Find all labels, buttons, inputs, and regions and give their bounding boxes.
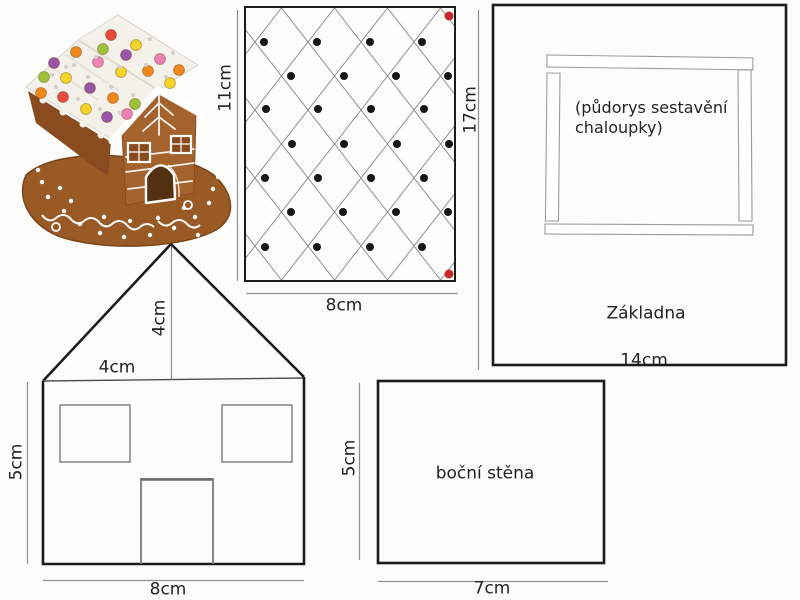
- icing-dot: [46, 195, 50, 199]
- dim-label-roof-left: 11cm: [218, 64, 235, 112]
- sugar-pearl: [98, 107, 102, 111]
- candy-button: [131, 40, 142, 51]
- corner-marker-dot: [445, 270, 454, 279]
- sugar-pearl: [72, 63, 76, 67]
- candy-button: [143, 66, 154, 77]
- lattice-dot: [262, 105, 270, 113]
- candy-button: [102, 112, 113, 123]
- icing-dot: [98, 231, 102, 235]
- floorplan-note-line2: chaloupky): [575, 118, 727, 138]
- lattice-dot: [366, 243, 374, 251]
- photo-door-arch: [146, 165, 175, 203]
- sugar-pearl: [64, 65, 68, 69]
- corner-marker-dot: [445, 12, 454, 21]
- pattern-sheet: 11cm 17cm 8cm (půdorys sestavění chaloup…: [0, 0, 800, 600]
- candy-button: [108, 93, 119, 104]
- candy-button: [122, 109, 133, 120]
- lattice-dot: [420, 174, 428, 182]
- candy-button: [61, 73, 72, 84]
- icing-dot: [172, 226, 176, 230]
- candy-button: [58, 92, 69, 103]
- candy-button: [155, 54, 166, 65]
- dim-label-roof-bottom: 8cm: [326, 298, 363, 315]
- lattice-dot: [287, 208, 295, 216]
- icing-dot: [196, 233, 200, 237]
- icing-dot: [207, 201, 211, 205]
- sugar-pearl: [171, 51, 175, 55]
- sugar-pearl: [94, 55, 98, 59]
- candy-button: [39, 72, 50, 83]
- icing-dot: [156, 216, 160, 220]
- icing-dot: [69, 199, 73, 203]
- icing-dot: [102, 215, 106, 219]
- sugar-pearl: [164, 75, 168, 79]
- gingerbread-house-photo: [8, 5, 238, 255]
- lattice-dot: [314, 105, 322, 113]
- dim-label-wall-side: 5cm: [9, 444, 26, 481]
- lattice-dot: [418, 243, 426, 251]
- lattice-dot: [339, 208, 347, 216]
- base-piece-label: Základna: [606, 306, 685, 323]
- lattice-dot: [392, 208, 400, 216]
- icing-dot: [62, 209, 66, 213]
- lattice-dot: [261, 243, 269, 251]
- icing-dot: [216, 175, 220, 179]
- sugar-pearl: [50, 73, 54, 77]
- dim-label-wall-bottom: 8cm: [150, 582, 187, 599]
- lattice-dot: [444, 208, 452, 216]
- dim-label-roof-right: 17cm: [463, 86, 480, 134]
- icing-dot: [211, 187, 215, 191]
- assembly-floorplan-bars: [545, 55, 753, 235]
- lattice-dot: [445, 140, 453, 148]
- icing-dot: [193, 215, 197, 219]
- lattice-dot: [288, 140, 296, 148]
- side-wall-label: boční stěna: [436, 466, 535, 483]
- sugar-pearl: [54, 85, 58, 89]
- lattice-dot: [287, 72, 295, 80]
- gingerbread-house-illustration: [8, 5, 238, 255]
- lattice-dot: [314, 174, 322, 182]
- lattice-dot: [444, 72, 452, 80]
- candy-button: [81, 104, 92, 115]
- icing-dot: [148, 233, 152, 237]
- sugar-pearl: [118, 111, 122, 115]
- lattice-dot: [260, 38, 268, 46]
- sugar-pearl: [86, 75, 90, 79]
- candy-button: [71, 47, 82, 58]
- lattice-dots: [246, 8, 454, 280]
- lattice-dot: [340, 72, 348, 80]
- lattice-dot: [367, 105, 375, 113]
- candy-button: [106, 30, 117, 41]
- lattice-dot: [366, 38, 374, 46]
- icing-dot: [40, 180, 44, 184]
- sugar-pearl: [109, 85, 113, 89]
- candy-button: [121, 50, 132, 61]
- lattice-dot: [420, 105, 428, 113]
- front-wall-piece-outline: [43, 244, 304, 564]
- lattice-dot: [418, 38, 426, 46]
- dim-label-sidewall-bottom: 7cm: [474, 581, 511, 598]
- candy-button: [49, 58, 60, 69]
- icing-dot: [58, 186, 62, 190]
- roof-piece-lattice: [244, 6, 456, 282]
- floorplan-note: (půdorys sestavění chaloupky): [575, 98, 727, 138]
- candy-button: [93, 57, 104, 68]
- sugar-pearl: [144, 63, 148, 67]
- candy-button: [98, 44, 109, 55]
- candy-button: [130, 99, 141, 110]
- sugar-pearl: [131, 93, 135, 97]
- window-right: [222, 405, 292, 462]
- candy-button: [165, 78, 176, 89]
- sugar-pearl: [148, 37, 152, 41]
- door: [141, 479, 213, 564]
- lattice-dot: [313, 38, 321, 46]
- lattice-dot: [367, 174, 375, 182]
- icing-dot: [122, 235, 126, 239]
- dim-label-base-bottom: 14cm: [620, 353, 668, 370]
- lattice-dot: [393, 140, 401, 148]
- dim-label-wall-top: 4cm: [99, 360, 136, 377]
- sugar-pearl: [118, 65, 122, 69]
- icing-dot: [128, 219, 132, 223]
- candy-button: [85, 83, 96, 94]
- floorplan-note-line1: (půdorys sestavění: [575, 98, 727, 118]
- dim-label-sidewall-side: 5cm: [342, 440, 359, 477]
- dim-label-gable-height: 4cm: [152, 300, 169, 337]
- lattice-dot: [313, 243, 321, 251]
- lattice-dot: [392, 72, 400, 80]
- window-left: [60, 405, 130, 462]
- lattice-dot: [340, 140, 348, 148]
- icing-dot: [36, 168, 40, 172]
- candy-button: [36, 88, 47, 99]
- lattice-dot: [261, 174, 269, 182]
- candy-button: [174, 65, 185, 76]
- sugar-pearl: [76, 97, 80, 101]
